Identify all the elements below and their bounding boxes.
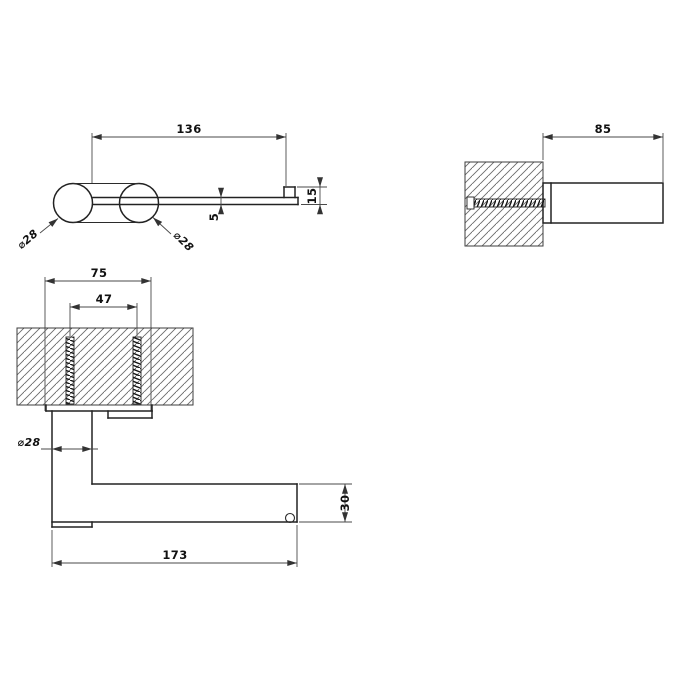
front-view: 75 47 ⌀28 [17, 266, 352, 567]
dim-30-label: 30 [338, 495, 352, 512]
dim-136-label: 136 [176, 122, 201, 136]
dim-47-label: 47 [96, 292, 113, 306]
dim-173-label: 173 [162, 548, 187, 562]
dim-5-label: 5 [207, 213, 221, 221]
leader-roller-diameter [153, 218, 171, 235]
holder-body-side [543, 183, 663, 223]
roller-diameter-label: ⌀28 [171, 229, 196, 254]
anchor-screw-left [66, 337, 74, 404]
side-view: 85 [465, 122, 663, 246]
front-post-diameter-label: ⌀28 [18, 436, 41, 449]
dim-75-label: 75 [91, 266, 108, 280]
screw-thread-side [474, 199, 545, 207]
post-circle-top-view [54, 184, 93, 223]
wall-section-front [17, 328, 193, 405]
top-view: 136 5 15 ⌀28 ⌀28 [15, 122, 327, 254]
drawing-canvas: 136 5 15 ⌀28 ⌀28 [0, 0, 700, 700]
dim-85-label: 85 [595, 122, 612, 136]
leader-post-diameter [40, 219, 58, 234]
anchor-screw-right [133, 337, 141, 404]
technical-drawing-page: 136 5 15 ⌀28 ⌀28 [0, 0, 700, 700]
screw-head-side [467, 197, 474, 209]
post-diameter-label: ⌀28 [15, 227, 41, 252]
arm-end-pin-hole [286, 514, 295, 523]
roller-circle-top-view [120, 184, 159, 223]
dim-15-label: 15 [305, 188, 319, 205]
